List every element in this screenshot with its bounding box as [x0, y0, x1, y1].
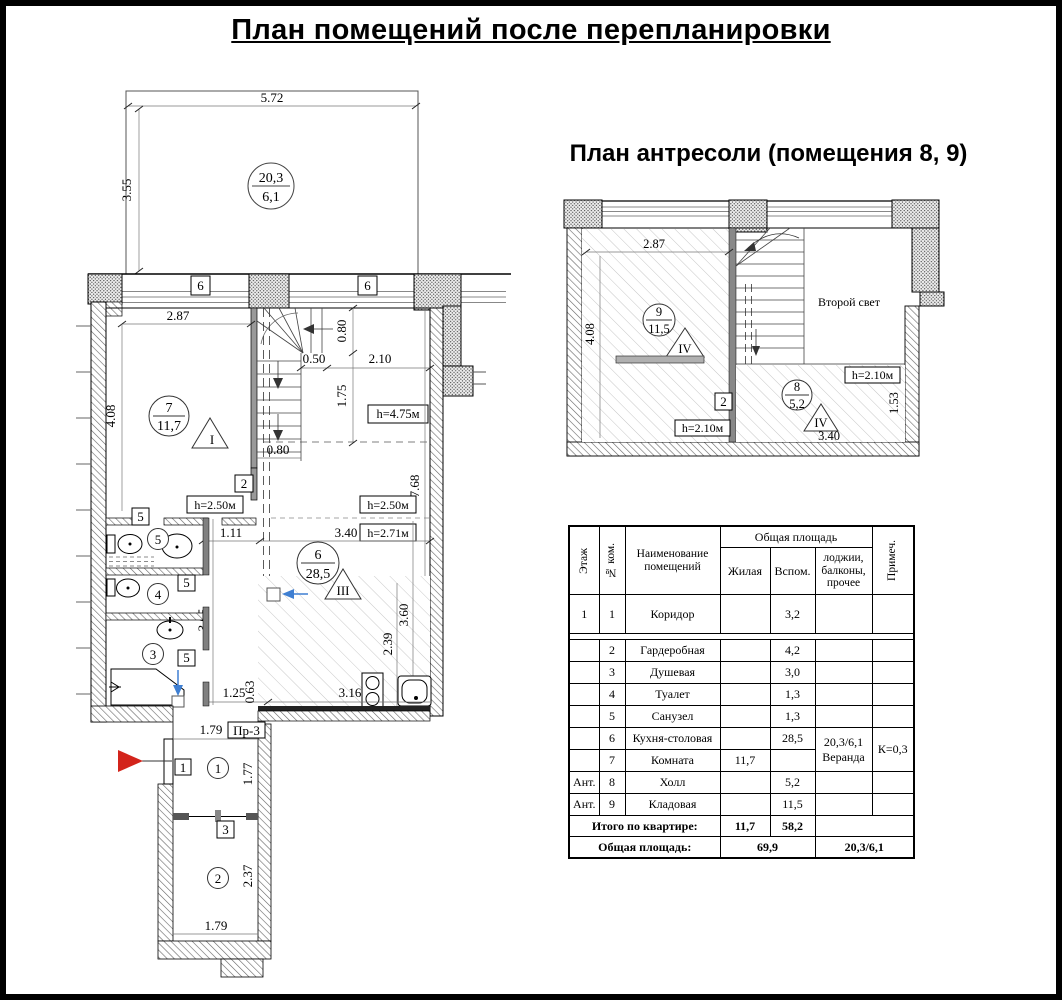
col-loggia: лоджии, балконы, прочее	[815, 548, 872, 595]
mz-pier-left	[564, 200, 602, 228]
partition-door-stub	[215, 810, 221, 822]
room-6-kitchen: 6 28,5 III 3.60 2.39 1.25 0.63 3.16	[195, 519, 431, 721]
mezzanine-title: План антресоли (помещения 8, 9)	[531, 140, 1006, 168]
cell-note	[872, 595, 914, 634]
mz-pier-right-foot	[920, 292, 944, 306]
cell-num: 1	[599, 595, 625, 634]
dim-0-80-mid: 0.80	[267, 442, 290, 457]
cell-loggia	[815, 640, 872, 662]
cell-floor: Ант.	[569, 794, 599, 816]
height-2-71: h=2.71м	[367, 526, 409, 540]
table-row: 2 Гардеробная 4,2	[569, 640, 914, 662]
height-2-50-left: h=2.50м	[194, 498, 236, 512]
east-niche-lower	[443, 366, 473, 396]
cell-floor	[569, 750, 599, 772]
room-6-area: 28,5	[306, 567, 331, 582]
entrance-arrow	[118, 750, 143, 772]
cell-num: 3	[599, 662, 625, 684]
dim-5-72: 5.72	[261, 90, 284, 105]
south-stub	[221, 959, 263, 977]
cell-num: 4	[599, 684, 625, 706]
mezzanine-plan: 2.87 4.08 9 11,5 IV	[547, 187, 971, 474]
room-3-number: 3	[150, 647, 157, 662]
cell-living: 11,7	[720, 750, 770, 772]
mz-dim-4-08: 4.08	[583, 323, 597, 345]
door-tag-3-label: 3	[222, 822, 229, 837]
veranda-area: 20,3	[259, 171, 284, 186]
mz-dim-2-87: 2.87	[643, 237, 665, 251]
dim-3-16: 3.16	[339, 685, 362, 700]
totals-living: 11,7	[720, 816, 770, 837]
table-row: Ант. 9 Кладовая 11,5	[569, 794, 914, 816]
cell-loggia	[815, 684, 872, 706]
totals-empty	[815, 816, 914, 837]
room-9-zone: IV	[678, 342, 691, 356]
cell-living	[720, 728, 770, 750]
col-room-name: Наименование помещений	[625, 526, 720, 595]
room-9-number: 9	[656, 305, 662, 319]
corridor-west-wall	[158, 784, 173, 941]
dim-2-10: 2.10	[369, 351, 392, 366]
col-group-total: Общая площадь	[720, 526, 872, 548]
cell-living	[720, 772, 770, 794]
cell-living	[720, 684, 770, 706]
mz-east-wall	[905, 306, 919, 456]
room-8-area: 5,2	[789, 397, 805, 411]
grand-value: 69,9	[720, 837, 815, 859]
col-floor: Этаж	[569, 526, 599, 595]
room-7-area: 11,7	[157, 419, 181, 434]
page-title: План помещений после перепланировки	[6, 14, 1056, 47]
veranda-coeff-area: 6,1	[262, 190, 280, 205]
height-4-75: h=4.75м	[376, 407, 419, 421]
cell-living	[720, 595, 770, 634]
veranda: 5.72 3.55 20,3 6,1	[119, 90, 420, 274]
col-note: Примеч.	[872, 526, 914, 595]
cell-name: Душевая	[625, 662, 720, 684]
cell-floor: Ант.	[569, 772, 599, 794]
south-kitchen-wall-core	[258, 706, 430, 711]
mz-south-wall	[567, 442, 919, 456]
cell-aux: 11,5	[770, 794, 815, 816]
mz-west-wall	[567, 228, 582, 456]
east-niche-upper	[443, 306, 461, 368]
table-row: Ант. 8 Холл 5,2	[569, 772, 914, 794]
cell-aux: 1,3	[770, 706, 815, 728]
drawing-sheet: План помещений после перепланировки План…	[0, 0, 1062, 1000]
room-9-kladovaya: 2.87 4.08 9 11,5 IV	[582, 228, 736, 442]
cell-note	[872, 794, 914, 816]
grand-label: Общая площадь:	[569, 837, 720, 859]
duct-tag: Пр-3	[233, 723, 260, 738]
mz-pier-middle	[729, 200, 767, 232]
mz-height-right: h=2.10м	[852, 368, 894, 382]
height-2-50-right: h=2.50м	[367, 498, 409, 512]
cell-aux: 4,2	[770, 640, 815, 662]
partition-1-2-right	[246, 813, 258, 820]
door-tag-5b-label: 5	[183, 575, 190, 590]
pier-left	[88, 274, 122, 304]
dim-3-60: 3.60	[396, 604, 411, 627]
room-9-area: 11,5	[648, 322, 669, 336]
toilet-5-tank	[107, 535, 115, 553]
cell-aux: 5,2	[770, 772, 815, 794]
dim-7-68: 7.68	[407, 475, 422, 498]
cell-aux	[770, 750, 815, 772]
mz-stair-arrow-down	[752, 346, 760, 356]
totals-aux: 58,2	[770, 816, 815, 837]
cell-loggia	[815, 772, 872, 794]
dim-0-80-top: 0.80	[334, 320, 349, 343]
cell-loggia	[815, 706, 872, 728]
door-tag-5c-label: 5	[183, 650, 190, 665]
dim-1-77: 1.77	[240, 762, 255, 785]
dim-0-63: 0.63	[242, 681, 257, 704]
dim-1-11: 1.11	[220, 525, 242, 540]
dim-3-40: 3.40	[335, 525, 358, 540]
cell-note	[872, 772, 914, 794]
dim-3-55: 3.55	[119, 179, 134, 202]
cell-name: Коридор	[625, 595, 720, 634]
bathrooms: 5 4 5 3 5	[106, 518, 209, 707]
door-tag-2-label: 2	[241, 476, 248, 491]
cell-loggia	[815, 662, 872, 684]
south-wall	[158, 941, 271, 959]
dim-2-87: 2.87	[167, 308, 190, 323]
cell-floor	[569, 662, 599, 684]
table-totals-row: Итого по квартире: 11,7 58,2	[569, 816, 914, 837]
partition-1-2-left	[173, 813, 189, 820]
room-7-komnata: 2.87 4.08 7 11,7 I 5	[103, 308, 257, 525]
col-aux: Вспом.	[770, 548, 815, 595]
cell-aux: 1,3	[770, 684, 815, 706]
cell-note	[872, 706, 914, 728]
totals-label: Итого по квартире:	[569, 816, 720, 837]
dim-4-08: 4.08	[103, 405, 118, 428]
view-marker-square	[267, 588, 280, 601]
area-table: Этаж № ком. Наименование помещений Общая…	[568, 525, 915, 859]
toilet-4-tank	[107, 579, 115, 596]
stair-arrow-left	[303, 324, 314, 334]
cell-note	[872, 684, 914, 706]
cell-living	[720, 706, 770, 728]
table-row: 3 Душевая 3,0	[569, 662, 914, 684]
door-tag-1-label: 1	[180, 760, 187, 775]
mz-height-left: h=2.10м	[682, 421, 724, 435]
room-6-zone: III	[337, 583, 350, 598]
cell-floor: 1	[569, 595, 599, 634]
cell-loggia	[815, 794, 872, 816]
room-8-number: 8	[794, 380, 800, 394]
cell-loggia	[815, 595, 872, 634]
pier-middle	[249, 274, 289, 308]
cell-note	[872, 662, 914, 684]
mz-dim-3-40: 3.40	[818, 429, 840, 443]
room-4-number: 4	[155, 587, 162, 602]
table-row: 5 Санузел 1,3	[569, 706, 914, 728]
cell-living	[720, 794, 770, 816]
main-floor-plan: 5.72 3.55 20,3 6,1 6 6	[62, 72, 536, 989]
cell-name: Холл	[625, 772, 720, 794]
cell-num: 8	[599, 772, 625, 794]
table-row: 1 1 Коридор 3,2	[569, 595, 914, 634]
cell-name: Туалет	[625, 684, 720, 706]
cell-floor	[569, 728, 599, 750]
dim-0-50: 0.50	[303, 351, 326, 366]
col-living: Жилая	[720, 548, 770, 595]
cell-note	[872, 640, 914, 662]
cell-name: Комната	[625, 750, 720, 772]
mz-door-tag-2-label: 2	[720, 394, 727, 409]
grand-loggia: 20,3/6,1	[815, 837, 914, 859]
cell-note-merged: К=0,3	[872, 728, 914, 772]
second-light-label: Второй свет	[818, 295, 881, 309]
cell-loggia-merged: 20,3/6,1 Веранда	[815, 728, 872, 772]
mz-pier-right-leg	[912, 228, 939, 292]
cell-aux: 3,0	[770, 662, 815, 684]
cell-name: Санузел	[625, 706, 720, 728]
window-tag-right-label: 6	[364, 278, 371, 293]
mz-stair-arrow	[744, 242, 756, 251]
room-2-number: 2	[215, 871, 222, 886]
table-row: 6 Кухня-столовая 28,5 20,3/6,1 Веранда К…	[569, 728, 914, 750]
cell-floor	[569, 640, 599, 662]
dim-1-75: 1.75	[334, 385, 349, 408]
entry-block: Пр-3 1.79 1 1 1.77 3 2 2.37 1.79	[91, 706, 271, 977]
dim-2-39: 2.39	[380, 633, 395, 656]
cell-num: 7	[599, 750, 625, 772]
dim-1-79-bottom: 1.79	[205, 918, 228, 933]
room-7-zone: I	[210, 432, 214, 447]
dim-2-37: 2.37	[240, 864, 255, 887]
east-wall	[430, 308, 443, 716]
door-tag-5a-label: 5	[137, 509, 144, 524]
col-room-number: № ком.	[599, 526, 625, 595]
table-header-row-1: Этаж № ком. Наименование помещений Общая…	[569, 526, 914, 548]
cell-num: 9	[599, 794, 625, 816]
cell-floor	[569, 684, 599, 706]
cell-num: 5	[599, 706, 625, 728]
room-1-number: 1	[215, 761, 222, 776]
stove	[362, 673, 383, 708]
cell-aux: 3,2	[770, 595, 815, 634]
adjacent-ticks-west	[76, 326, 91, 694]
window-tag-left-label: 6	[197, 278, 204, 293]
corridor-east-wall	[258, 724, 271, 941]
mz-pier-right	[892, 200, 939, 228]
cell-num: 6	[599, 728, 625, 750]
cell-name: Гардеробная	[625, 640, 720, 662]
west-wall	[91, 302, 106, 722]
washer-dashed	[109, 557, 154, 566]
cell-aux: 28,5	[770, 728, 815, 750]
dim-1-79-top: 1.79	[200, 722, 223, 737]
room-6-number: 6	[315, 548, 322, 563]
cell-living	[720, 662, 770, 684]
view-marker-square-2	[172, 696, 184, 707]
railing-bar	[616, 356, 704, 363]
room-8-zone: IV	[814, 416, 827, 430]
table-row: 4 Туалет 1,3	[569, 684, 914, 706]
cell-num: 2	[599, 640, 625, 662]
table-grand-total-row: Общая площадь: 69,9 20,3/6,1	[569, 837, 914, 859]
pier-right	[414, 274, 461, 310]
mz-dim-1-53: 1.53	[887, 392, 901, 414]
cell-living	[720, 640, 770, 662]
cell-name: Кухня-столовая	[625, 728, 720, 750]
room-7-number: 7	[166, 401, 173, 416]
cell-floor	[569, 706, 599, 728]
cell-name: Кладовая	[625, 794, 720, 816]
room-5-number: 5	[155, 532, 162, 547]
